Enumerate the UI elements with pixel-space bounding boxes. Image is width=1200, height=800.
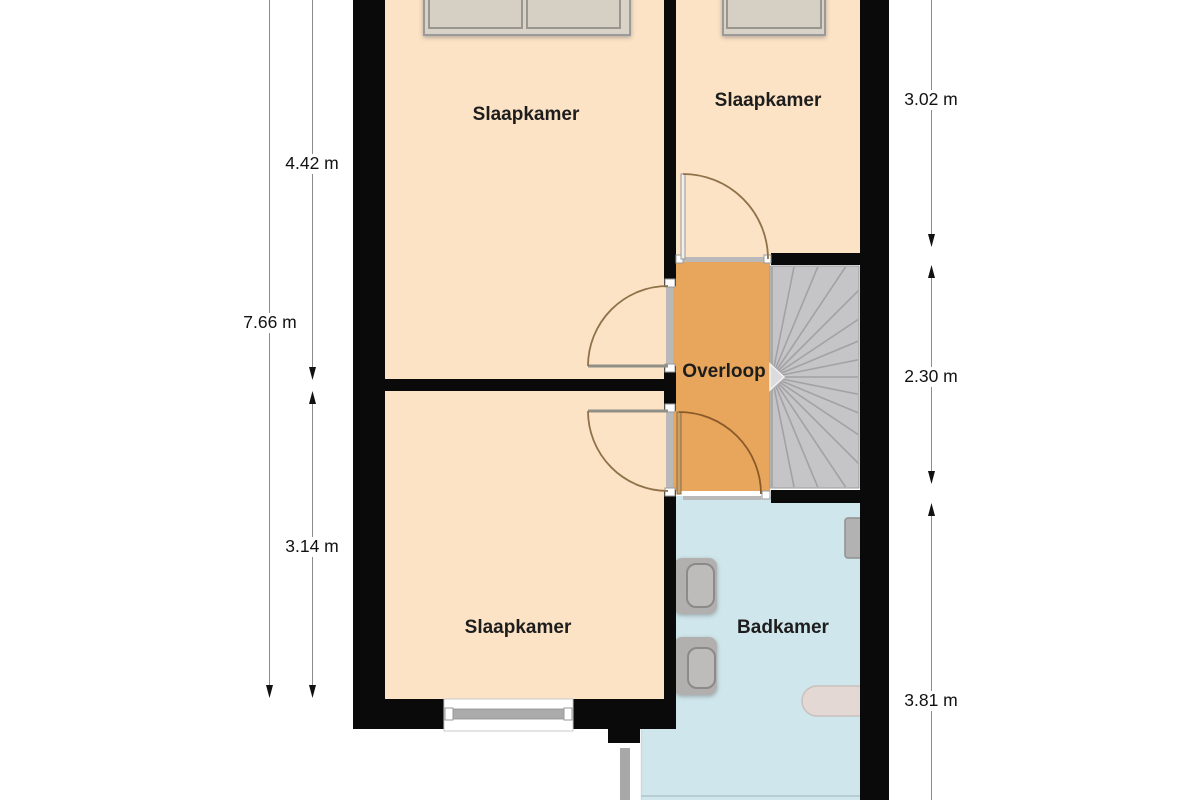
svg-text:Slaapkamer: Slaapkamer (465, 617, 572, 638)
svg-text:Overloop: Overloop (682, 361, 765, 382)
svg-text:3.02 m: 3.02 m (904, 89, 958, 109)
svg-text:7.66 m: 7.66 m (243, 312, 297, 332)
svg-text:2.30 m: 2.30 m (904, 366, 958, 386)
svg-text:Badkamer: Badkamer (737, 617, 829, 638)
svg-text:Slaapkamer: Slaapkamer (473, 104, 580, 125)
svg-text:Slaapkamer: Slaapkamer (715, 90, 822, 111)
svg-text:3.81 m: 3.81 m (904, 690, 958, 710)
svg-text:3.14 m: 3.14 m (285, 536, 339, 556)
svg-text:4.42 m: 4.42 m (285, 153, 339, 173)
